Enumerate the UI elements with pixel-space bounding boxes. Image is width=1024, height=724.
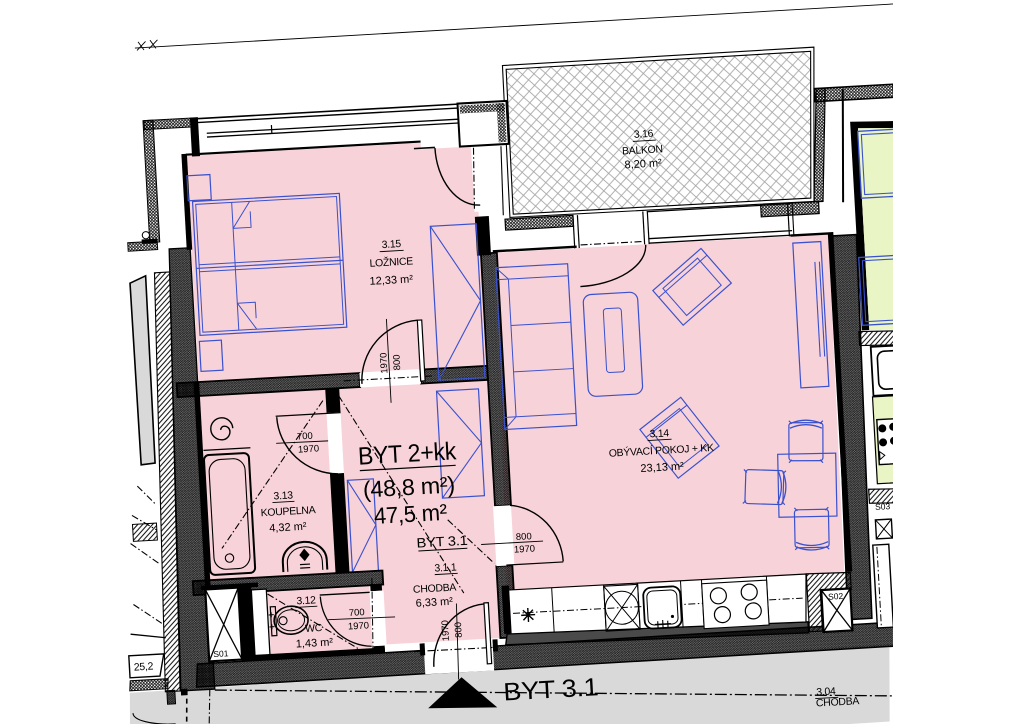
svg-text:700: 700 xyxy=(297,431,313,443)
svg-text:3.12: 3.12 xyxy=(296,594,316,607)
svg-text:BYT 3.1: BYT 3.1 xyxy=(503,673,599,706)
svg-text:3.1.1: 3.1.1 xyxy=(434,561,457,574)
svg-text:1970: 1970 xyxy=(298,443,320,455)
svg-text:3.13: 3.13 xyxy=(273,489,293,502)
svg-text:23,13 m²: 23,13 m² xyxy=(640,461,684,475)
svg-text:BYT 3.1: BYT 3.1 xyxy=(416,533,468,551)
svg-text:1970: 1970 xyxy=(440,620,452,642)
svg-text:8,20 m²: 8,20 m² xyxy=(624,157,662,171)
svg-text:1970: 1970 xyxy=(514,543,536,555)
svg-text:6,33 m²: 6,33 m² xyxy=(415,596,453,610)
svg-text:800: 800 xyxy=(453,622,465,638)
svg-text:4,32 m²: 4,32 m² xyxy=(269,521,307,535)
svg-text:CHODBA: CHODBA xyxy=(413,581,457,595)
svg-text:(48,8 m²): (48,8 m²) xyxy=(362,471,455,502)
svg-text:CHODBA: CHODBA xyxy=(816,695,860,709)
svg-text:S02: S02 xyxy=(828,591,844,602)
svg-text:1970: 1970 xyxy=(348,620,370,632)
svg-text:S03: S03 xyxy=(875,501,891,512)
svg-text:3.14: 3.14 xyxy=(649,427,669,440)
svg-text:3.15: 3.15 xyxy=(381,238,401,251)
svg-text:1970: 1970 xyxy=(378,352,390,374)
svg-text:S01: S01 xyxy=(213,648,229,659)
svg-text:700: 700 xyxy=(349,607,365,619)
svg-text:12,33 m²: 12,33 m² xyxy=(369,273,413,287)
svg-text:800: 800 xyxy=(516,531,532,543)
svg-text:LOŽNICE: LOŽNICE xyxy=(369,254,413,269)
svg-text:3.16: 3.16 xyxy=(634,128,654,141)
svg-text:1,43 m²: 1,43 m² xyxy=(295,636,333,650)
svg-text:BALKON: BALKON xyxy=(622,143,663,157)
svg-text:800: 800 xyxy=(391,354,403,370)
svg-text:WC: WC xyxy=(305,622,323,635)
svg-text:47,5 m²: 47,5 m² xyxy=(373,499,448,529)
svg-text:25,2: 25,2 xyxy=(134,660,154,673)
